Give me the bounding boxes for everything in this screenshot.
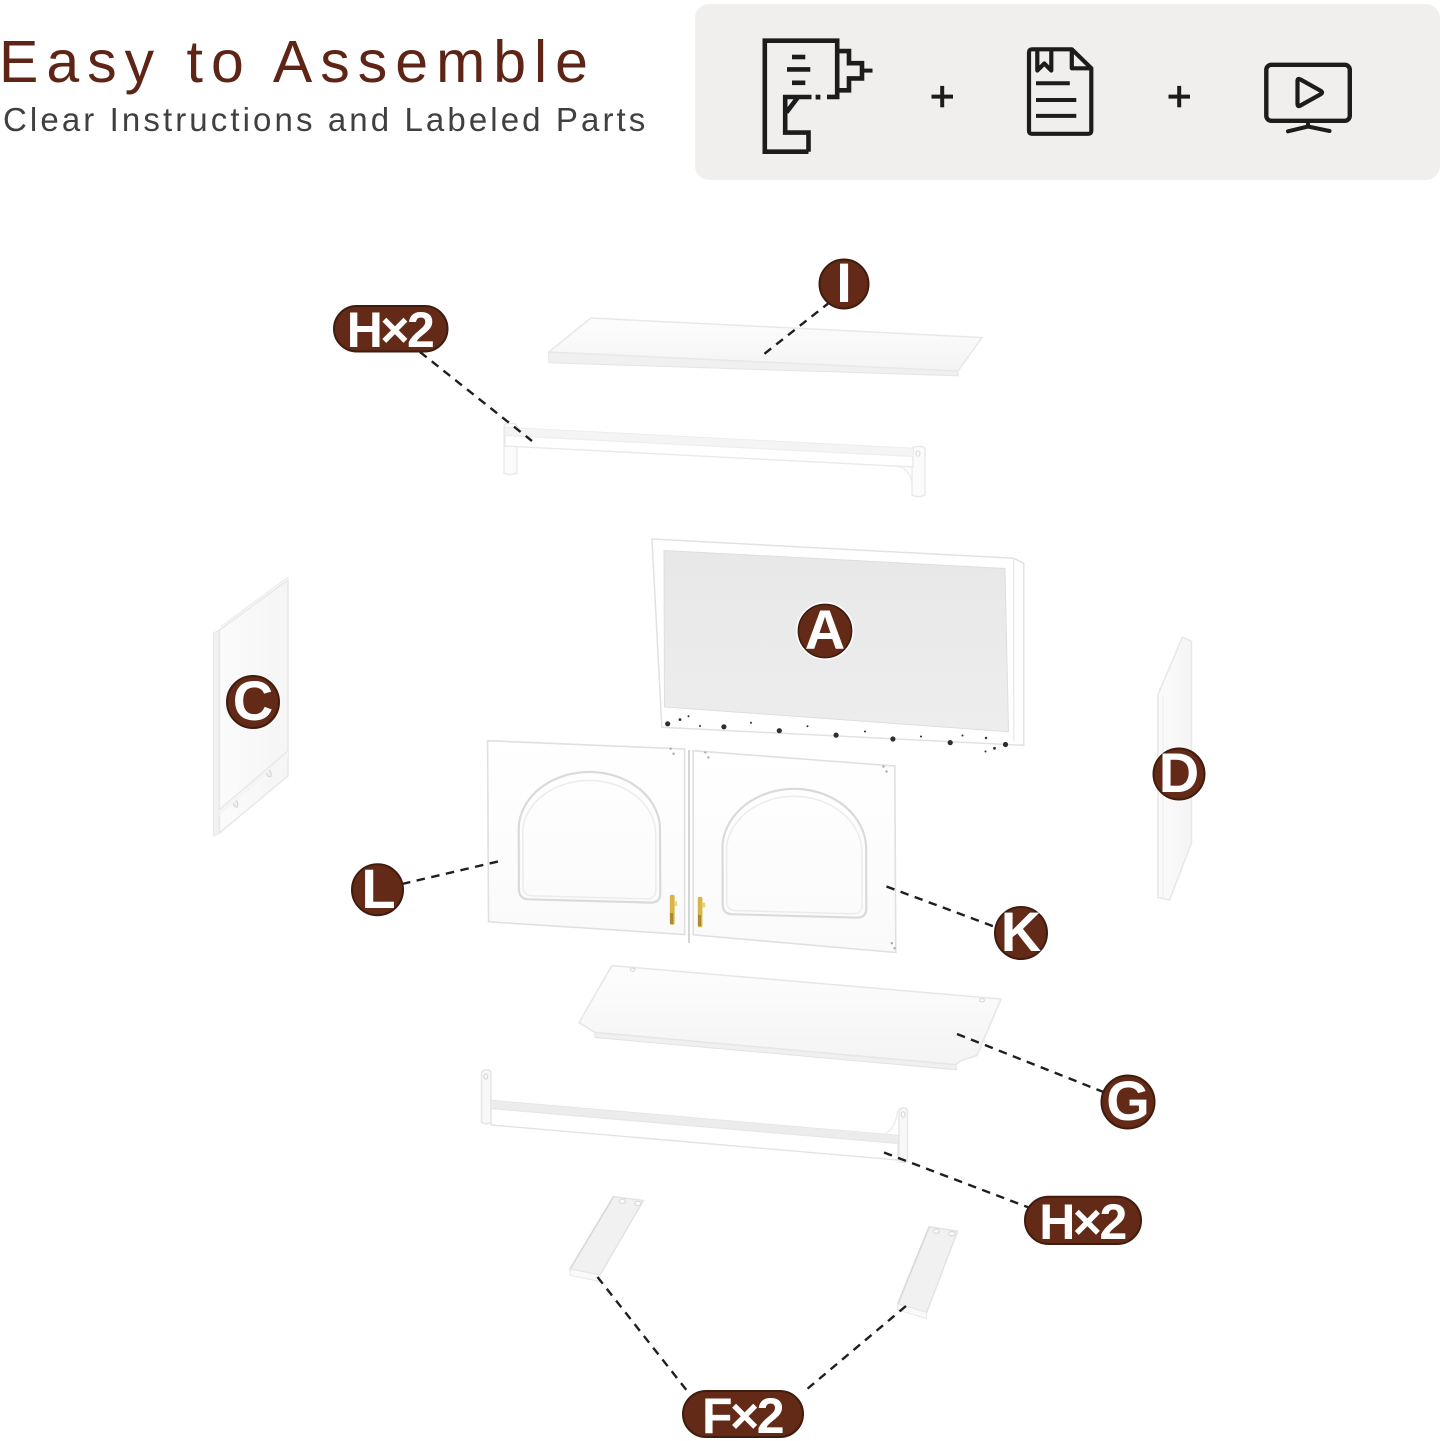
- svg-text:F×2: F×2: [702, 1388, 783, 1441]
- svg-text:L: L: [361, 857, 395, 920]
- svg-text:H×2: H×2: [347, 302, 433, 358]
- svg-text:A: A: [805, 598, 845, 661]
- svg-text:K: K: [1001, 900, 1041, 963]
- svg-text:G: G: [1106, 1069, 1150, 1132]
- svg-text:I: I: [836, 251, 852, 314]
- svg-text:H×2: H×2: [1039, 1194, 1125, 1250]
- svg-text:Clear Instructions and Labeled: Clear Instructions and Labeled Parts: [3, 101, 648, 138]
- svg-text:C: C: [233, 669, 273, 732]
- svg-text:D: D: [1159, 741, 1199, 804]
- svg-text:Easy to Assemble: Easy to Assemble: [0, 29, 596, 95]
